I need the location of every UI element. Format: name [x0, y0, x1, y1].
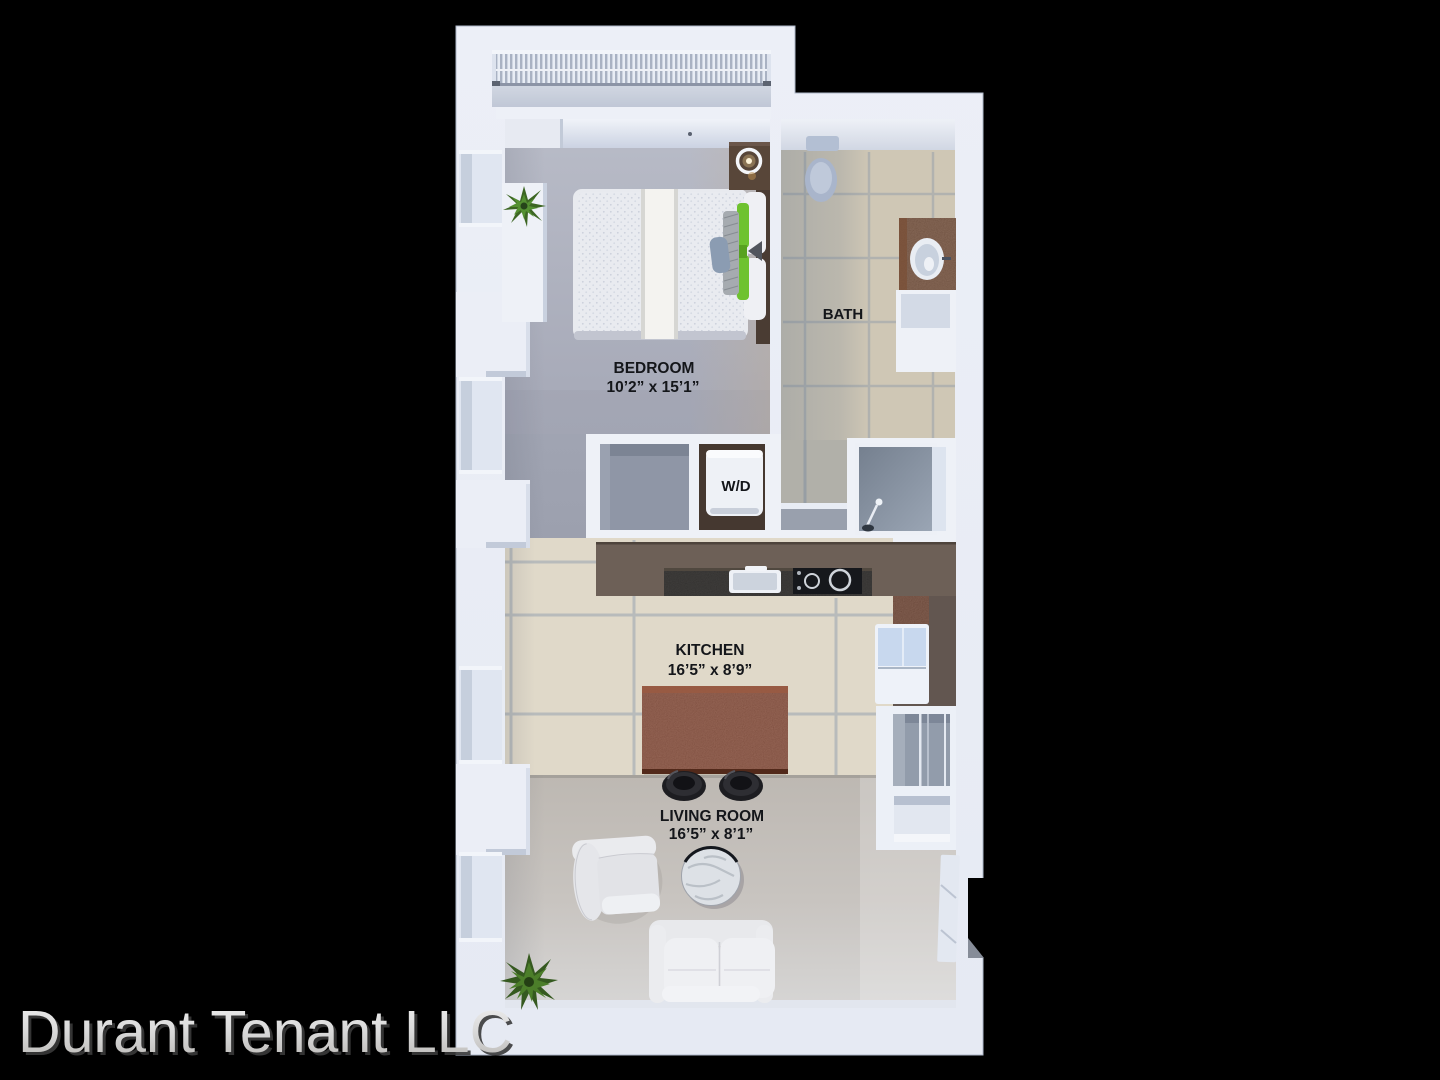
svg-text:BEDROOM: BEDROOM [614, 360, 695, 377]
svg-text:16’5” x 8’1”: 16’5” x 8’1” [669, 826, 753, 843]
svg-text:BATH: BATH [823, 306, 864, 323]
svg-text:W/D: W/D [721, 478, 750, 495]
svg-text:KITCHEN: KITCHEN [676, 642, 745, 659]
svg-text:Durant Tenant LLC: Durant Tenant LLC [18, 999, 512, 1065]
svg-text:LIVING ROOM: LIVING ROOM [660, 808, 764, 825]
svg-text:16’5” x 8’9”: 16’5” x 8’9” [668, 662, 752, 679]
svg-text:10’2” x 15’1”: 10’2” x 15’1” [606, 379, 699, 396]
